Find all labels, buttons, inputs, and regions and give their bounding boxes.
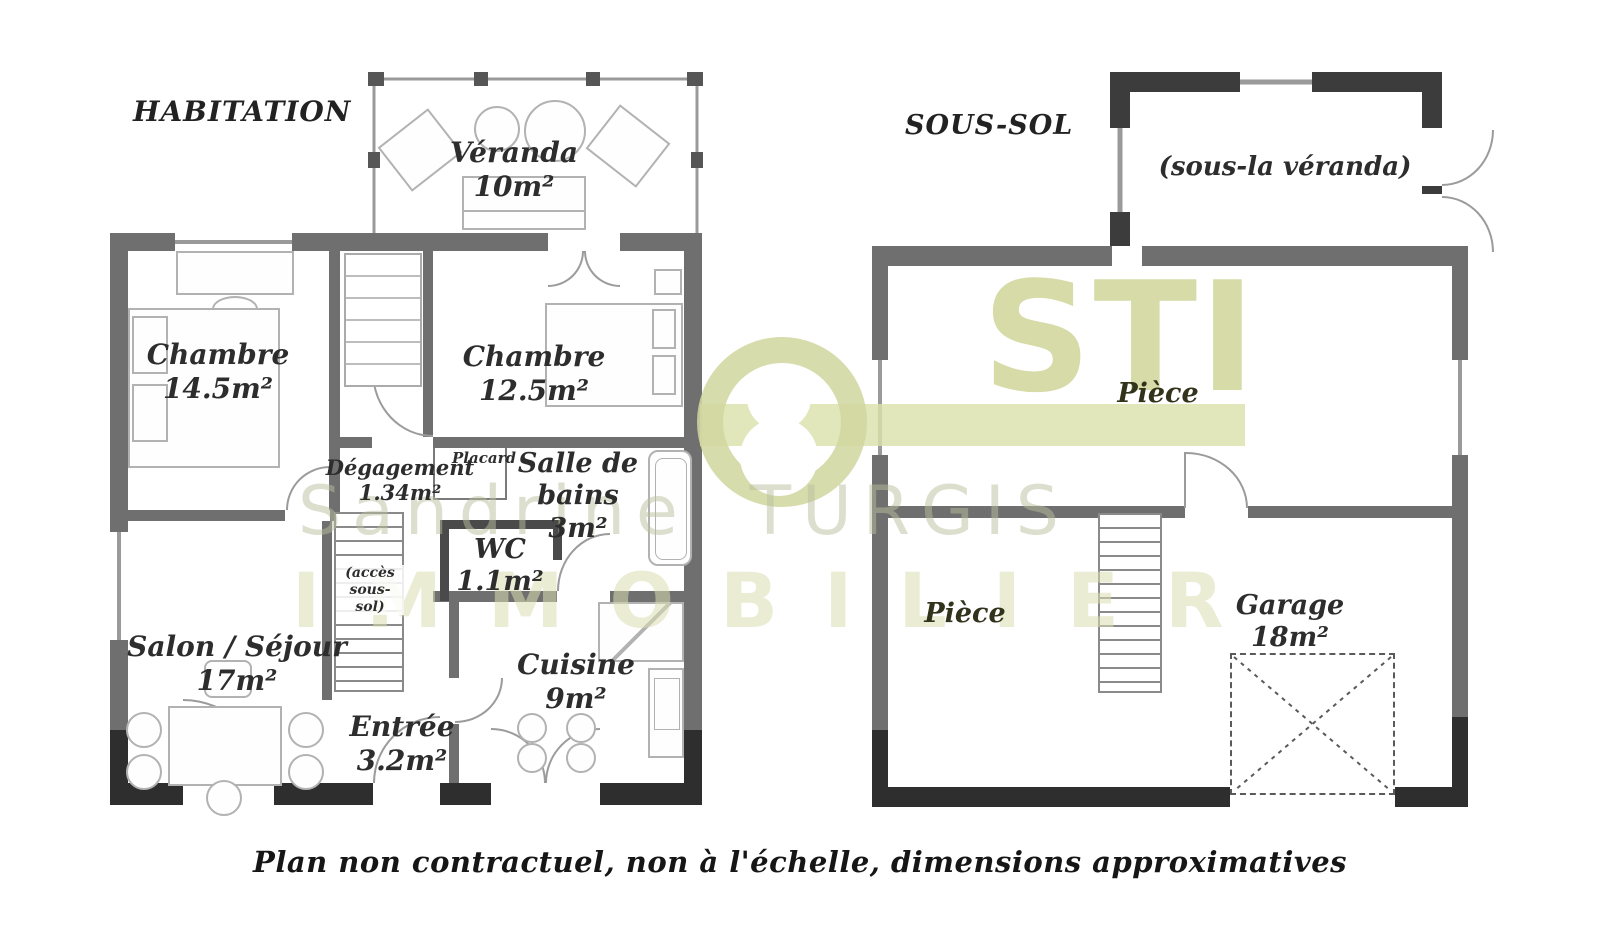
veranda-glazing-top	[368, 72, 703, 86]
room-label-cuisine: Cuisine 9m²	[517, 648, 635, 715]
kitchen-sink	[654, 678, 680, 730]
door-swing	[584, 251, 620, 287]
window	[1240, 72, 1312, 92]
room-label-wc: WC 1.1m²	[456, 534, 543, 599]
room-label-entree: Entrée 3.2m²	[349, 710, 454, 777]
pillow	[652, 355, 676, 395]
door-opening	[372, 437, 433, 448]
chair	[206, 780, 242, 816]
stairs-sous-sol	[1098, 513, 1162, 693]
wall	[110, 233, 128, 730]
garage-zone	[1230, 653, 1395, 795]
garage-cross	[1232, 655, 1393, 793]
nightstand	[654, 269, 682, 295]
chair	[517, 743, 547, 773]
armchair	[586, 104, 671, 188]
window	[872, 360, 888, 455]
floor-plan-canvas: HABITATION	[0, 0, 1600, 929]
window	[110, 532, 128, 640]
veranda-post	[687, 72, 703, 86]
door-opening	[285, 510, 330, 521]
room-label-salle-de-bains: Salle de bains 3m²	[498, 448, 658, 545]
window	[175, 233, 292, 251]
room-label-chambre-1: Chambre 14.5m²	[147, 338, 290, 405]
chair	[566, 743, 596, 773]
wall	[1452, 246, 1468, 717]
veranda-post	[368, 152, 380, 168]
wall	[872, 246, 1468, 266]
door-opening	[1422, 194, 1442, 252]
veranda-post	[586, 72, 600, 86]
door-opening	[1422, 128, 1442, 186]
door-opening	[373, 783, 440, 805]
chair	[517, 713, 547, 743]
window	[1452, 360, 1468, 455]
chair	[126, 712, 162, 748]
room-label-chambre-2: Chambre 12.5m²	[463, 340, 606, 407]
door-opening	[557, 591, 610, 602]
chair	[126, 754, 162, 790]
plan-title-habitation: HABITATION	[133, 95, 351, 128]
watermark-logo-eight-top	[747, 366, 811, 430]
room-label-piece-bas: Pièce	[924, 598, 1005, 630]
chair	[566, 713, 596, 743]
watermark-logo-ring	[697, 337, 867, 507]
door-swing	[1442, 130, 1494, 186]
door-swing	[1186, 452, 1248, 508]
dining-table	[168, 706, 282, 786]
door-opening	[491, 783, 600, 805]
veranda-post	[368, 72, 384, 86]
room-label-veranda: Véranda 10m²	[450, 136, 578, 203]
room-label-salon-sejour: Salon / Séjour 17m²	[127, 630, 347, 697]
door-swing	[548, 251, 584, 287]
room-label-garage: Garage 18m²	[1236, 590, 1344, 655]
watermark-logo-eight-bottom	[740, 418, 818, 496]
window	[1110, 128, 1130, 212]
wall	[888, 506, 1452, 518]
plan-title-sous-sol: SOUS-SOL	[905, 110, 1073, 141]
chair	[288, 712, 324, 748]
room-label-sous-veranda: (sous-la véranda)	[1159, 152, 1412, 183]
door-opening	[1112, 246, 1142, 266]
wardrobe	[344, 253, 422, 387]
room-label-piece-haut: Pièce	[1117, 378, 1198, 410]
veranda-post	[474, 72, 488, 86]
pillow	[652, 309, 676, 349]
door-swing	[1442, 196, 1494, 252]
stairs-note: (accès sous-sol)	[336, 565, 404, 615]
door-swing	[286, 466, 330, 510]
caption: Plan non contractuel, non à l'échelle, d…	[0, 845, 1600, 879]
wall	[440, 520, 449, 601]
bathtub-inner	[655, 458, 687, 560]
door-opening	[548, 233, 620, 251]
veranda-post	[691, 152, 703, 168]
sofa-seat-line	[462, 210, 586, 212]
desk	[176, 251, 294, 295]
wall	[872, 246, 888, 730]
door-swing	[455, 678, 503, 723]
chair	[288, 754, 324, 790]
